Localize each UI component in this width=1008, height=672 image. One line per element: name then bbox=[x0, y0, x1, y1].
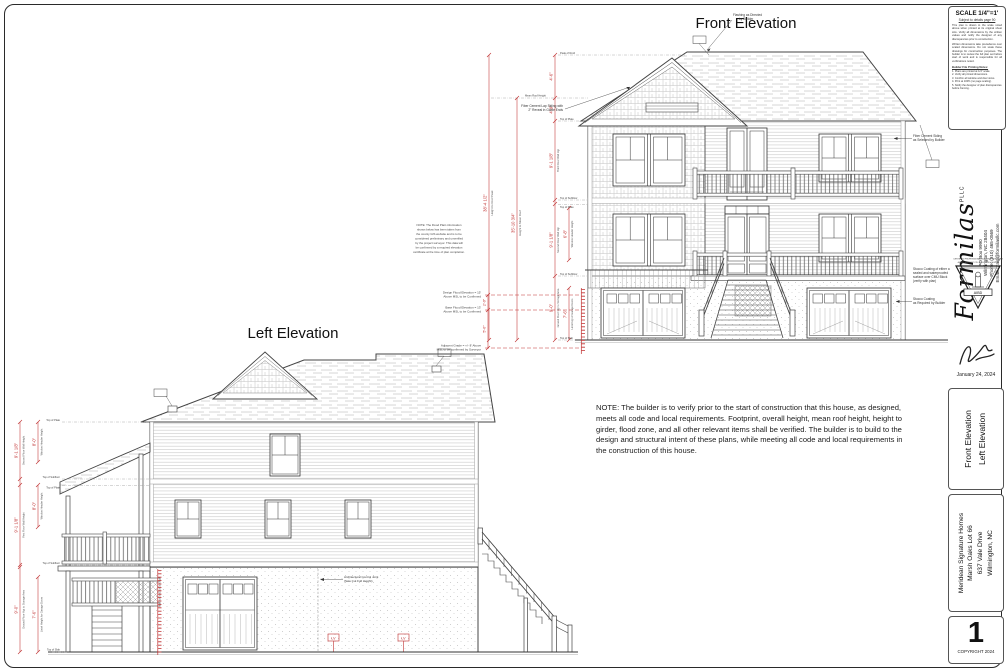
left-dim-ground: 9'-0" bbox=[14, 605, 19, 614]
front-level-subfloor3: Top of Subfloor bbox=[560, 196, 578, 200]
sheet-number-box: 1 COPYRIGHT 2024 bbox=[948, 616, 1004, 664]
sheet-number: 1 bbox=[949, 619, 1003, 648]
ann-control-joint-line2: (Saw Cut Full Height) bbox=[344, 579, 373, 583]
flood-note-line6: be confirmed by a required elevation bbox=[416, 246, 463, 250]
scale-box: SCALE 1/4"=1' Subject to details page 90… bbox=[948, 6, 1006, 130]
ann-stucco1-line4: (verify with plan) bbox=[913, 279, 936, 283]
front-dim-header: 6'-8" bbox=[563, 229, 568, 238]
scale-paragraph-1: This plan is drawn to the scale noted ab… bbox=[952, 24, 1002, 41]
flood-dfe-line2: Above MSL to be Confirmed bbox=[443, 295, 481, 299]
builder-note: NOTE: The builder is to verify prior to … bbox=[596, 403, 914, 457]
designer-signature bbox=[952, 330, 1004, 372]
scale-subtitle: Subject to details page 90 bbox=[952, 18, 1002, 22]
left-level-subfloor1: Top of Subfloor bbox=[43, 561, 61, 565]
left-elevation-title: Left Elevation bbox=[248, 325, 339, 342]
left-dim-lintel: 7'-6" bbox=[32, 610, 37, 619]
front-dim-floor3: 9'-1 1/8" bbox=[549, 152, 554, 168]
left-elevation-drawing: Left Elevation bbox=[8, 322, 588, 670]
left-dim-floor2-label: Second Floor Wall Height bbox=[22, 436, 26, 466]
left-dim-header-b-label: Window Header Height bbox=[40, 492, 44, 519]
seal-top-text: CERTIFIED PROFESSIONAL BUILDING DESIGNER bbox=[953, 258, 1003, 261]
front-dim-overall2: 35'-10 3/4" bbox=[511, 212, 516, 232]
left-dim-ground-label: Ground Floor Hgt to Storage Area bbox=[22, 590, 26, 629]
lighthouse-emblem bbox=[972, 272, 984, 287]
left-level-subfloor2: Top of Subfloor bbox=[43, 475, 61, 479]
front-level-mean: Mean Roof Height bbox=[525, 93, 546, 97]
flood-note-line2: shown below has been taken from bbox=[417, 228, 461, 232]
front-dim-seg-a: 4'-6" bbox=[549, 72, 554, 81]
front-elevation-drawing: Front Elevation bbox=[395, 8, 950, 360]
flood-note-line1: NOTE: The Flood Plain information bbox=[417, 223, 462, 227]
front-level-plate2: Top of Plate bbox=[560, 205, 574, 209]
left-dim-floor1-label: First Floor Wall Height bbox=[22, 512, 26, 538]
plan-date: January 24, 2024 bbox=[944, 372, 1008, 378]
front-level-plate3: Top of Plate bbox=[560, 117, 574, 121]
front-dim-ground: 9'-0" bbox=[549, 303, 554, 312]
front-dim-overall1-label: Height to Roof Peak bbox=[490, 190, 494, 216]
flood-note-line7: certificate at the time of plan completi… bbox=[413, 250, 465, 254]
scale-notes-title: Builder File Printing Notes: bbox=[952, 65, 1002, 69]
ann-flashing-line2: by Builder bbox=[739, 17, 754, 21]
front-dim-overall2-label: Height to Mean Roof bbox=[518, 210, 522, 236]
left-dim-floor2: 9'-1 1/8" bbox=[14, 442, 19, 458]
left-level-plate2: Top of Plate bbox=[46, 418, 60, 422]
ann-siding-line2: as Selected by Builder bbox=[913, 138, 946, 142]
flood-note-line3: the county GIS website and is to be bbox=[416, 232, 462, 236]
seal-banner-text: AIBD bbox=[974, 291, 983, 295]
ann-gable-line2: 2" Reveal in Gable Ends bbox=[528, 108, 563, 112]
project-city: Wilmington, NC bbox=[986, 530, 996, 576]
front-level-subfloor2: Top of Subfloor bbox=[560, 272, 578, 276]
left-dim-lintel-label: Lintel Height for Garage Doors bbox=[40, 596, 44, 632]
flood-note-line5: by the project surveyor. This data will bbox=[415, 241, 463, 245]
project-box: Meridean Signature Homes Marsh Oaks Lot … bbox=[948, 494, 1004, 612]
left-vent-label-2: LV bbox=[401, 637, 406, 641]
seal-sub-text: AMERICAN INSTITUTE OF BUILDING DESIGN bbox=[958, 261, 999, 264]
sheet-name-line2: Left Elevation bbox=[976, 413, 990, 465]
sheet-name-box: Front Elevation Left Elevation bbox=[948, 388, 1004, 490]
project-street: 637 Vale Drive bbox=[976, 532, 986, 575]
flood-bfe-line2: Above MSL to be Confirmed bbox=[443, 310, 481, 314]
copyright-text: COPYRIGHT 2024 bbox=[949, 649, 1003, 654]
left-dim-floor1: 9'-1 1/8" bbox=[14, 517, 19, 533]
left-level-plate1: Top of Plate bbox=[46, 486, 60, 490]
firm-suffix: PLLC bbox=[959, 186, 965, 203]
front-dim-floor2-label: Second Floor Wall Hgt bbox=[556, 227, 560, 253]
front-dim-overall1: 38'-4 1/2" bbox=[483, 194, 488, 212]
front-dim-floor3-label: Third Floor Wall Hgt bbox=[556, 149, 560, 172]
left-dim-header-b: 8'-0" bbox=[32, 501, 37, 510]
scale-note-5: 5. Notify the designer of plan discrepan… bbox=[952, 84, 1002, 91]
scale-title: SCALE 1/4"=1' bbox=[952, 10, 1002, 17]
front-dim-floor2: 9'-1 1/8" bbox=[549, 232, 554, 248]
front-dim-lintel: 7'-6" bbox=[563, 309, 568, 318]
ann-stucco2-line2: as Required by Builder bbox=[913, 301, 946, 305]
front-level-peak: Peak of Roof bbox=[560, 51, 575, 55]
front-dim-header-label: Window Header Height bbox=[570, 220, 574, 247]
left-vent-label-1: LV bbox=[331, 637, 336, 641]
project-client: Meridean Signature Homes bbox=[957, 513, 967, 593]
left-dim-header-a: 8'-0" bbox=[32, 437, 37, 446]
left-level-slab: Top of Slab bbox=[47, 648, 61, 652]
scale-paragraph-2: Written dimensions take precedence over … bbox=[952, 43, 1002, 63]
sheet-name-line1: Front Elevation bbox=[962, 410, 976, 468]
front-house bbox=[575, 36, 948, 343]
front-dim-flood-a: 2'-0" bbox=[483, 298, 487, 306]
left-house: LV LV bbox=[48, 349, 578, 655]
designer-seal: CERTIFIED PROFESSIONAL BUILDING DESIGNER… bbox=[950, 254, 1006, 330]
flood-note-line4: considered preliminary and unverified bbox=[415, 237, 463, 241]
project-lot: Marsh Oaks Lot 66 bbox=[966, 525, 976, 581]
left-dim-header-a-label: Window Header Height bbox=[40, 428, 44, 455]
